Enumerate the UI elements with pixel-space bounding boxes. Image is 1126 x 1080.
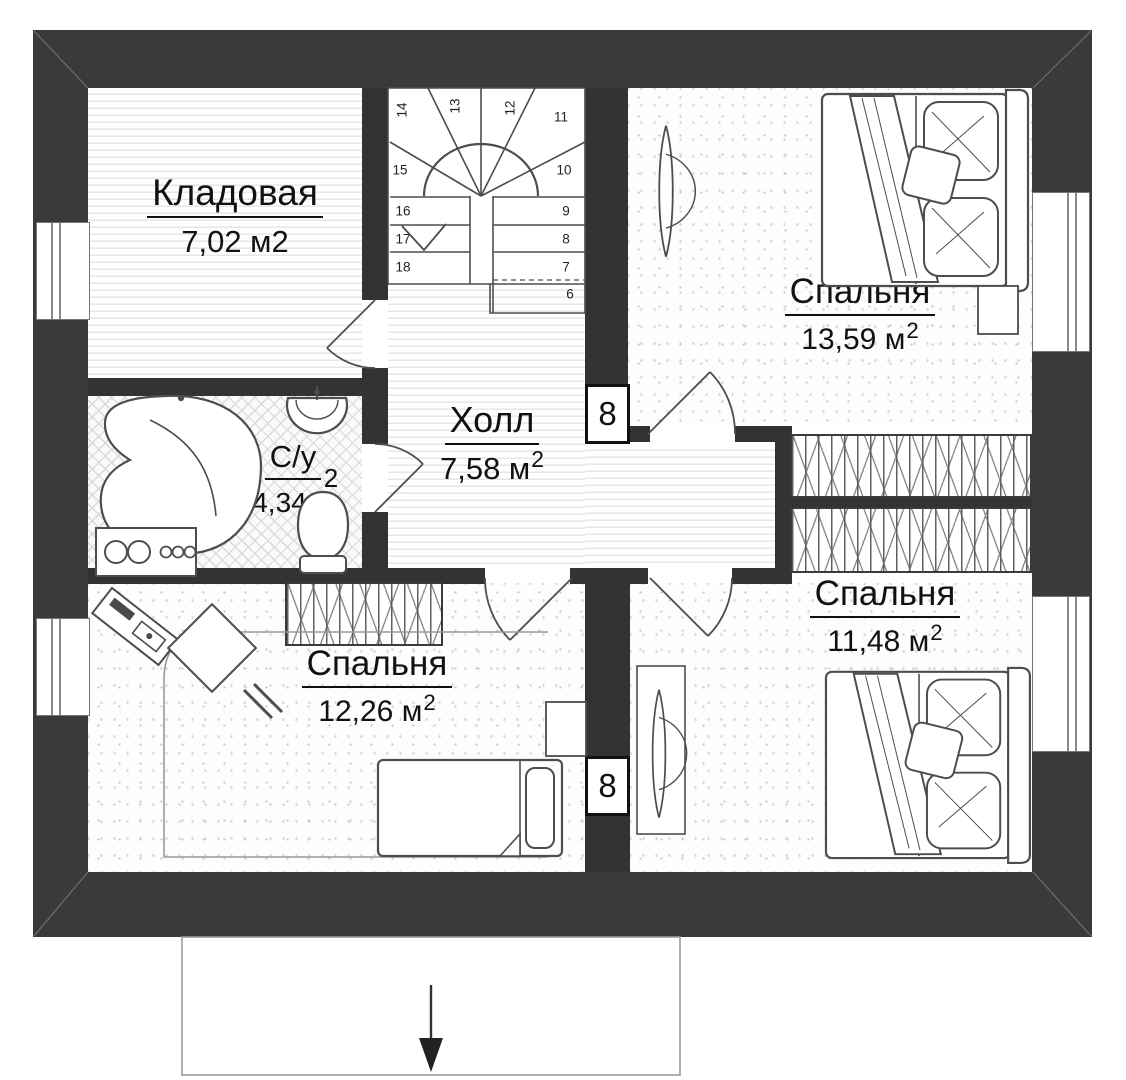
window-right-lower (1032, 596, 1090, 752)
vent-label: 8 (598, 767, 616, 805)
floor-plan: 8 8 Кладовая 7,02 м2 Холл 7,58 м2 С/у2 4… (0, 0, 1126, 1080)
window-frame (51, 619, 53, 715)
wall-bathroom-right-lower (362, 512, 388, 568)
stair-step-number: 16 (395, 204, 410, 219)
area-superscript: 2 (531, 446, 544, 472)
stair-step-number: 13 (448, 98, 463, 113)
vent-label: 8 (598, 395, 616, 433)
room-label-bedroom-bottom-left: Спальня 12,26 м2 (262, 644, 492, 729)
wall-bedrooms-divider-lower (585, 816, 630, 872)
stair-step-number: 8 (562, 232, 570, 247)
wardrobe-right-lower (790, 507, 1032, 573)
wall-wardrobe-divider (790, 498, 1032, 507)
hall-corridor-floor (585, 444, 775, 568)
room-name: Холл (445, 400, 540, 445)
area-superscript: 2 (930, 620, 942, 645)
window-frame (1067, 597, 1069, 751)
wall-storage-bathroom (88, 378, 388, 396)
window-frame (59, 223, 61, 319)
wardrobe-right-upper (790, 434, 1032, 498)
room-name: Спальня (810, 574, 961, 618)
window-frame (59, 619, 61, 715)
bedroom-top-right-floor (628, 88, 1032, 426)
room-name: Спальня (302, 644, 453, 688)
stair-step-number: 10 (556, 163, 571, 178)
room-name: С/у2 (265, 440, 322, 480)
vent-shaft-bottom: 8 (585, 756, 630, 816)
wall-bedrooms-divider-upper (585, 584, 630, 758)
wall-hall-bottom-center (570, 568, 648, 584)
window-frame (1067, 193, 1069, 351)
area-superscript: 2 (906, 318, 918, 343)
room-name: Спальня (785, 272, 936, 316)
stair-step-number: 9 (562, 204, 570, 219)
outer-wall-left (33, 30, 88, 937)
window-right-upper (1032, 192, 1090, 352)
stair-step-number: 6 (566, 287, 574, 302)
room-area: 13,59 м2 (740, 323, 980, 357)
area-superscript: 2 (324, 464, 338, 493)
room-label-storage: Кладовая 7,02 м2 (100, 172, 370, 260)
entrance-porch (182, 937, 680, 1075)
room-area: 7,02 м2 (100, 225, 370, 260)
stair-step-number: 7 (562, 260, 570, 275)
window-frame (1075, 193, 1077, 351)
room-area: 4,34 м (226, 487, 360, 518)
area-superscript: 2 (423, 690, 435, 715)
entrance-arrow-icon (419, 985, 443, 1072)
room-area: 12,26 м2 (262, 695, 492, 729)
stair-step-number: 14 (395, 102, 410, 117)
room-label-bedroom-top-right: Спальня 13,59 м2 (740, 272, 980, 357)
stair-step-number: 12 (503, 100, 518, 115)
wall-stairs-bedroom (585, 88, 628, 384)
window-left-lower (36, 618, 90, 716)
stair-step-number: 11 (554, 110, 568, 125)
wall-corridor-top-post (628, 426, 650, 442)
outer-wall-right (1032, 30, 1092, 937)
room-label-hall: Холл 7,58 м2 (392, 400, 592, 487)
room-name: Кладовая (147, 172, 323, 218)
outer-wall-top (33, 30, 1092, 88)
window-frame (1075, 597, 1077, 751)
room-area: 7,58 м2 (392, 452, 592, 487)
wall-bathroom-right-upper (362, 396, 388, 444)
stair-step-number: 15 (392, 163, 407, 178)
room-label-bedroom-bottom-right: Спальня 11,48 м2 (770, 574, 1000, 659)
stair-step-number: 17 (395, 232, 410, 247)
wardrobe-bedroom-left (285, 582, 443, 646)
stair-step-number: 18 (395, 260, 410, 275)
room-area: 11,48 м2 (770, 625, 1000, 659)
window-frame (51, 223, 53, 319)
room-label-bathroom: С/у2 4,34 м (226, 440, 360, 518)
window-left-upper (36, 222, 90, 320)
outer-wall-bottom (33, 872, 1092, 937)
